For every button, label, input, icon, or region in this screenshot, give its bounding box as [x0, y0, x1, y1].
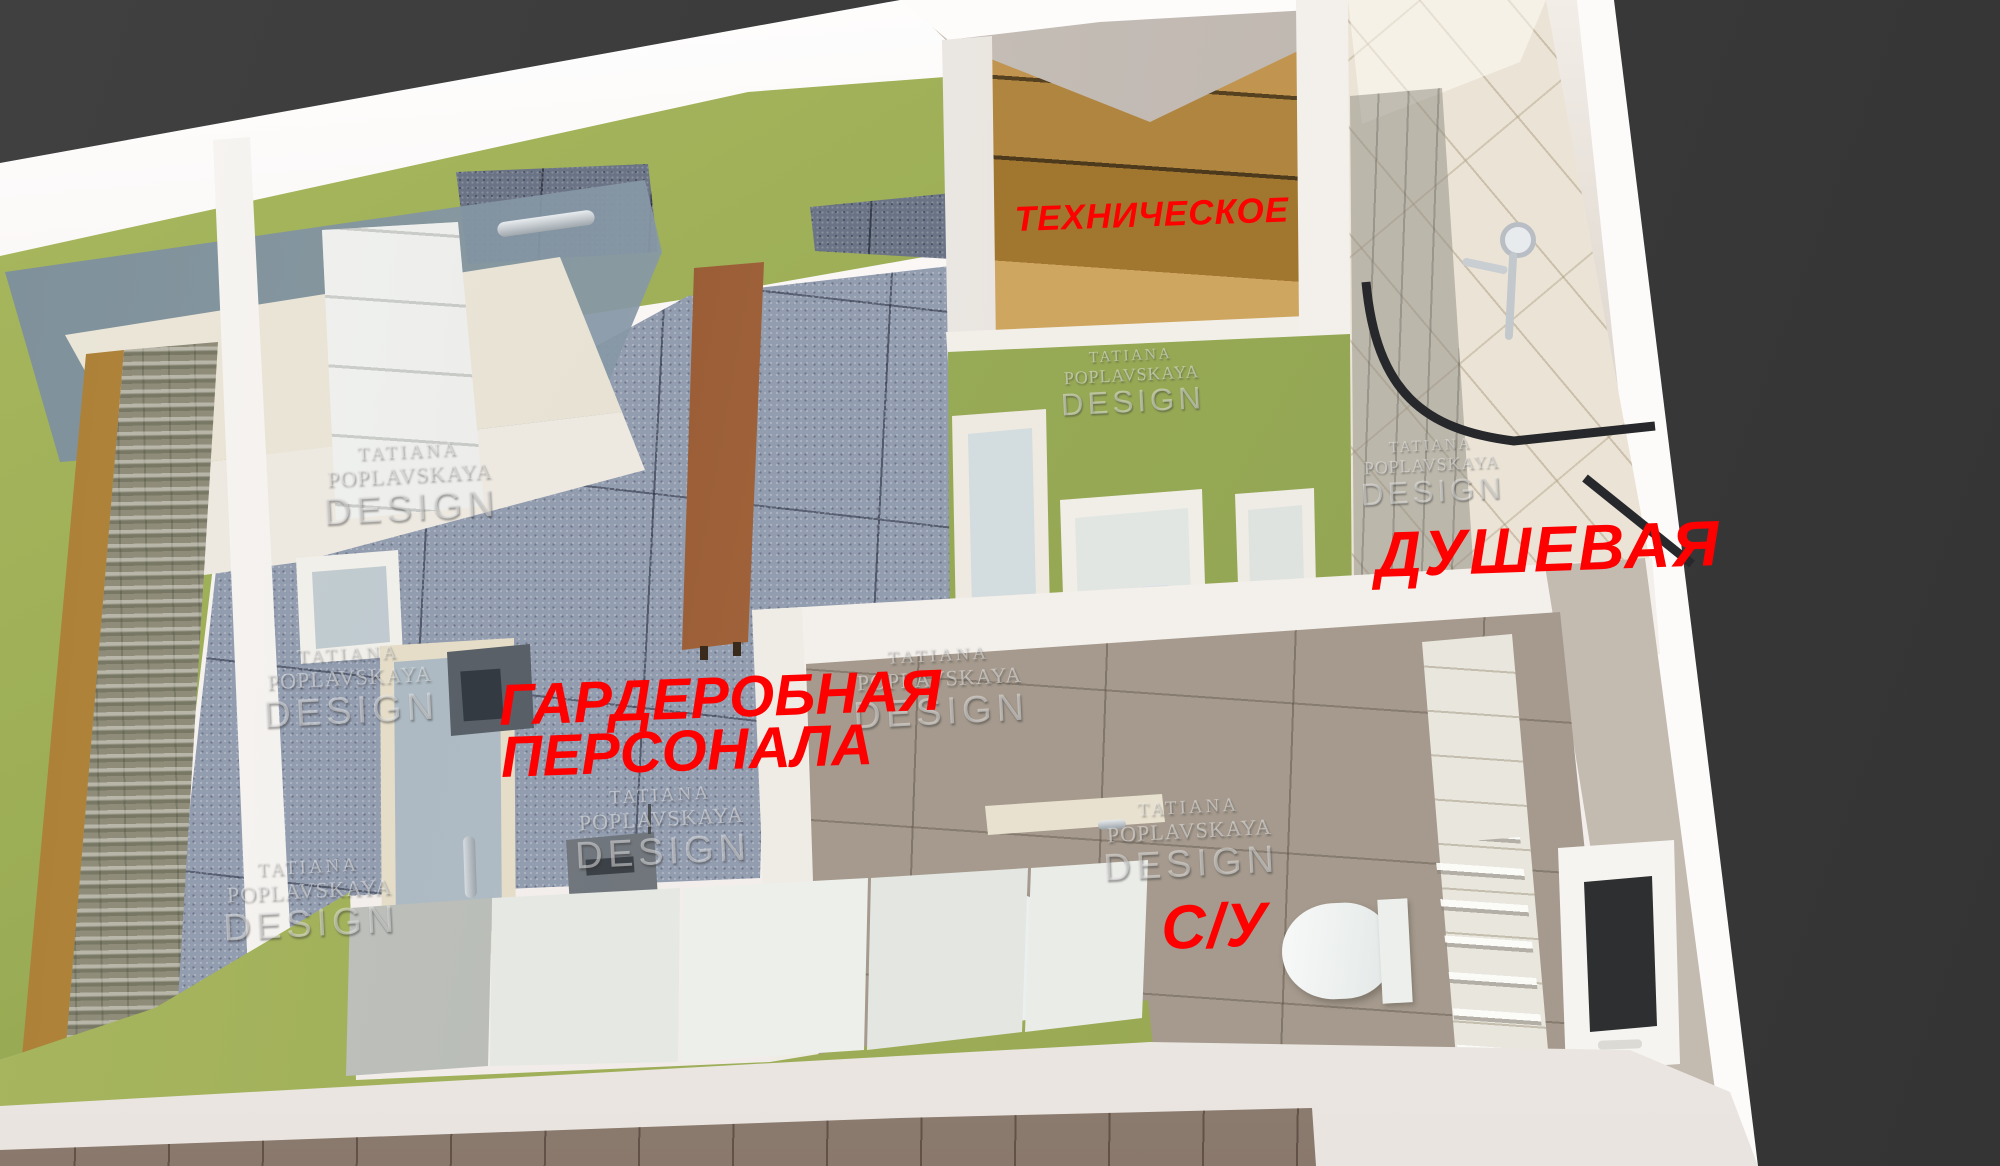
room-label-shower: ДУШЕВАЯ: [1374, 506, 1722, 592]
bench-leg: [733, 642, 741, 656]
door-handle-icon: [463, 836, 477, 898]
wc-toilet-tank: [1377, 898, 1412, 1003]
room-label-wc: С/У: [1160, 889, 1269, 964]
wall-hook-icon: [648, 804, 651, 834]
bench-leg: [700, 646, 708, 660]
folding-seat-slot: [586, 856, 635, 875]
door-handle-icon: [1098, 819, 1127, 830]
window-handle-icon: [1598, 1039, 1642, 1050]
room-label-staff-wardrobe: ГАРДЕРОБНАЯ ПЕРСОНАЛА: [498, 665, 944, 785]
interior-plan-render: TATIANA POPLAVSKAYA DESIGN TATIANA POPLA…: [0, 0, 2000, 1166]
